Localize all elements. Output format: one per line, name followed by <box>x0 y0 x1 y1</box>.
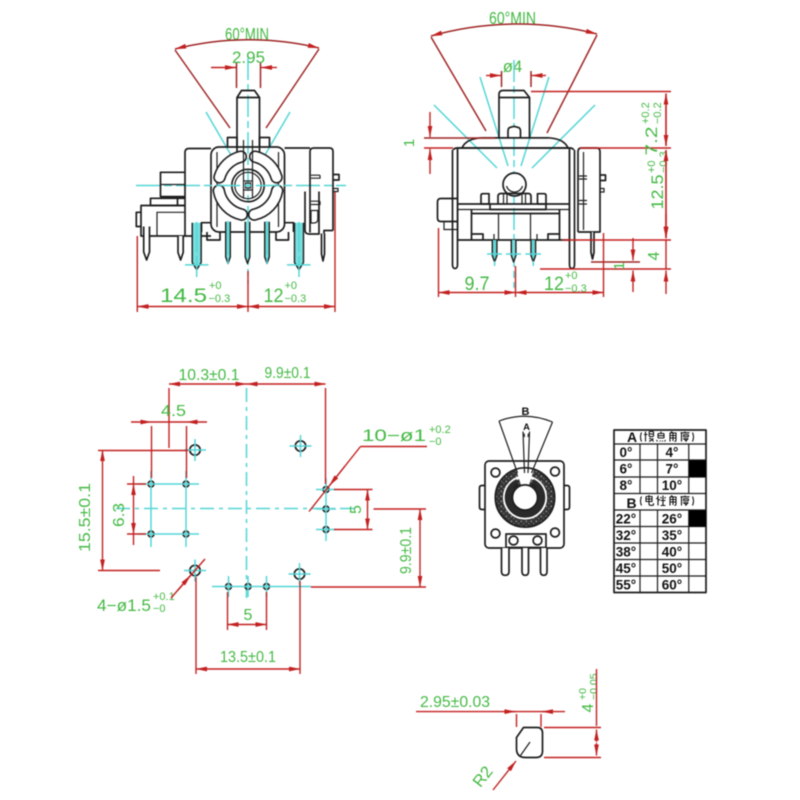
svg-text:A: A <box>523 422 530 433</box>
svg-text:10.3±0.1: 10.3±0.1 <box>179 367 240 384</box>
svg-text:+0: +0 <box>565 270 578 282</box>
svg-text:60°MIN: 60°MIN <box>225 24 269 44</box>
svg-text:4−ø1.5: 4−ø1.5 <box>97 597 151 615</box>
svg-text:13.5±0.1: 13.5±0.1 <box>220 649 276 666</box>
svg-text:+0: +0 <box>646 160 658 173</box>
svg-text:10°: 10° <box>662 478 682 493</box>
svg-text:55°: 55° <box>616 578 636 593</box>
svg-text:7°: 7° <box>666 462 679 477</box>
svg-text:8°: 8° <box>620 478 633 493</box>
svg-text:+0.2: +0.2 <box>429 424 451 436</box>
svg-text:B: B <box>522 406 530 418</box>
svg-text:45°: 45° <box>616 561 636 576</box>
svg-text:10−ø1: 10−ø1 <box>362 427 426 445</box>
svg-text:+0: +0 <box>285 280 298 292</box>
svg-text:−0: −0 <box>153 603 166 615</box>
svg-text:50°: 50° <box>662 561 682 576</box>
svg-text:−0.3: −0.3 <box>209 293 231 305</box>
svg-text:2.95±0.03: 2.95±0.03 <box>420 694 490 711</box>
svg-text:A: A <box>627 429 637 445</box>
svg-text:5: 5 <box>244 607 253 624</box>
svg-text:5: 5 <box>348 505 365 514</box>
svg-text:6°: 6° <box>620 462 633 477</box>
svg-text:4°: 4° <box>666 445 679 460</box>
svg-text:−0.3: −0.3 <box>285 293 307 305</box>
svg-text:0°: 0° <box>620 445 633 460</box>
svg-text:12: 12 <box>264 286 284 307</box>
svg-text:9.9±0.1: 9.9±0.1 <box>265 365 311 382</box>
svg-text:ø4: ø4 <box>503 57 523 76</box>
svg-text:7.2: 7.2 <box>642 127 661 156</box>
svg-text:9.9±0.1: 9.9±0.1 <box>398 527 415 574</box>
svg-text:35°: 35° <box>662 528 682 543</box>
svg-text:−0.2: −0.2 <box>652 102 664 124</box>
svg-text:32°: 32° <box>616 528 636 543</box>
svg-text:15.5±0.1: 15.5±0.1 <box>77 483 94 552</box>
svg-text:26°: 26° <box>662 512 682 527</box>
svg-text:40°: 40° <box>662 545 682 560</box>
svg-text:1: 1 <box>401 139 418 147</box>
svg-text:12.5: 12.5 <box>648 175 667 210</box>
svg-text:−0: −0 <box>429 436 442 448</box>
svg-text:−0.3: −0.3 <box>658 151 670 173</box>
svg-text:B: B <box>627 495 637 511</box>
svg-text:4.5: 4.5 <box>161 403 186 420</box>
svg-text:+0.2: +0.2 <box>640 102 652 124</box>
svg-text:−0.05: −0.05 <box>588 673 600 700</box>
svg-text:60°: 60° <box>662 578 682 593</box>
svg-text:22°: 22° <box>616 512 636 527</box>
svg-text:4: 4 <box>646 251 663 260</box>
svg-text:+0: +0 <box>209 280 222 292</box>
svg-text:4: 4 <box>580 703 597 712</box>
svg-text:1: 1 <box>611 262 628 270</box>
svg-text:14.5: 14.5 <box>160 286 207 307</box>
svg-text:38°: 38° <box>616 545 636 560</box>
svg-text:6.3: 6.3 <box>111 503 128 527</box>
